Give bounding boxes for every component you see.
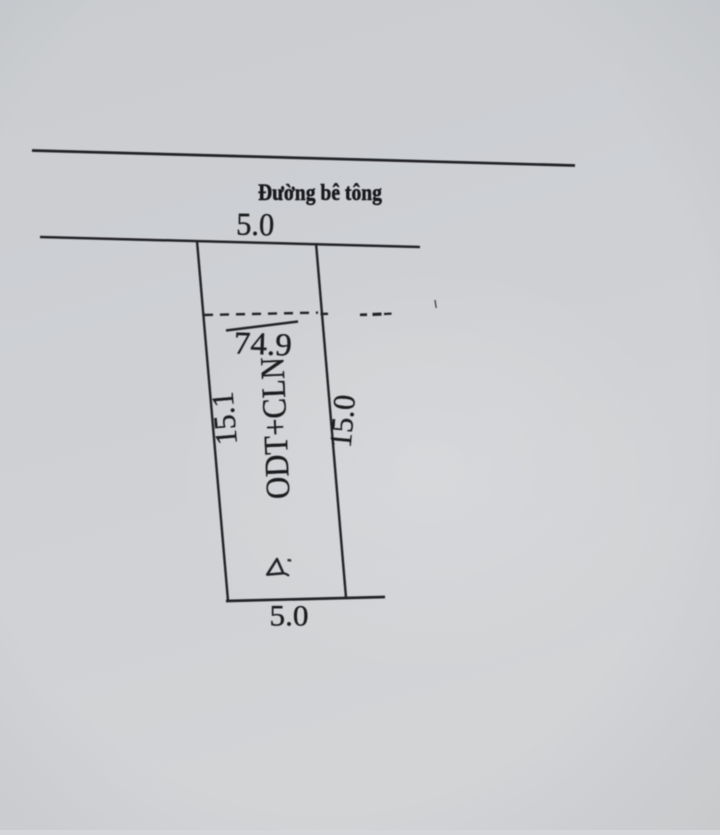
svg-text:ODT+CLN: ODT+CLN <box>254 356 297 499</box>
svg-text:15.1: 15.1 <box>204 391 243 447</box>
svg-text:Đường bê tông: Đường bê tông <box>258 180 382 206</box>
svg-text:5.0: 5.0 <box>270 600 309 633</box>
svg-text:15.0: 15.0 <box>323 393 362 449</box>
svg-text:5.0: 5.0 <box>236 206 275 243</box>
